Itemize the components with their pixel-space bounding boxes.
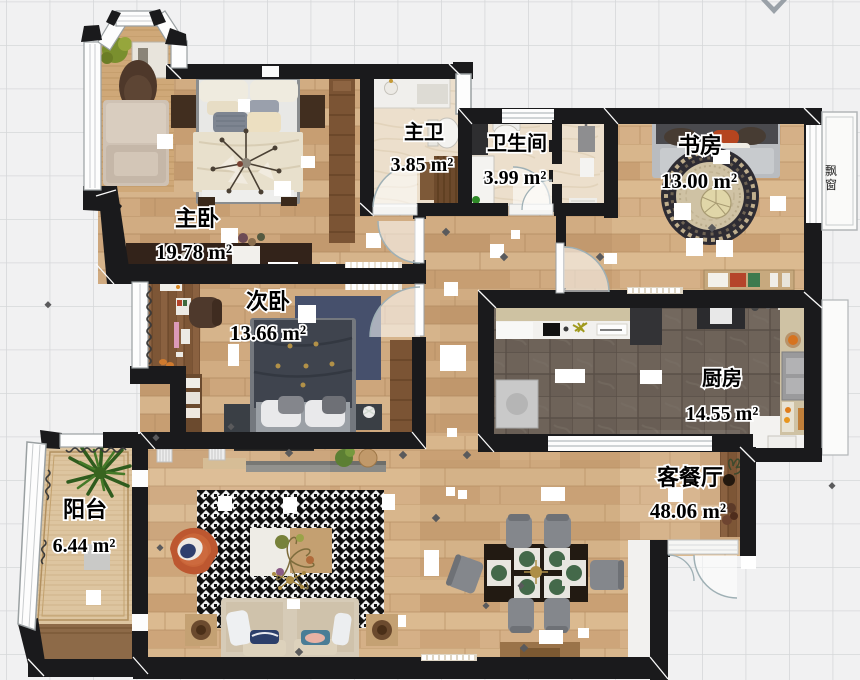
svg-text:主卧: 主卧 [175,206,219,231]
svg-text:14.55 m²: 14.55 m² [686,403,759,425]
svg-text:13.66 m²: 13.66 m² [230,321,306,345]
svg-text:主卫: 主卫 [404,120,444,144]
svg-text:13.00 m²: 13.00 m² [661,169,737,193]
svg-text:厨房: 厨房 [702,366,742,390]
svg-text:窗: 窗 [825,178,837,192]
svg-text:次卧: 次卧 [246,289,290,314]
svg-text:书房: 书房 [678,133,722,158]
svg-text:阳台: 阳台 [63,497,107,522]
svg-text:客餐厅: 客餐厅 [657,465,723,490]
svg-text:6.44 m²: 6.44 m² [53,535,116,557]
svg-text:3.99 m²: 3.99 m² [484,167,547,189]
svg-text:3.85 m²: 3.85 m² [391,154,454,176]
svg-text:48.06 m²: 48.06 m² [650,499,726,523]
svg-text:19.78 m²: 19.78 m² [156,240,232,264]
svg-text:飘: 飘 [825,164,837,178]
svg-text:卫生间: 卫生间 [487,132,547,155]
